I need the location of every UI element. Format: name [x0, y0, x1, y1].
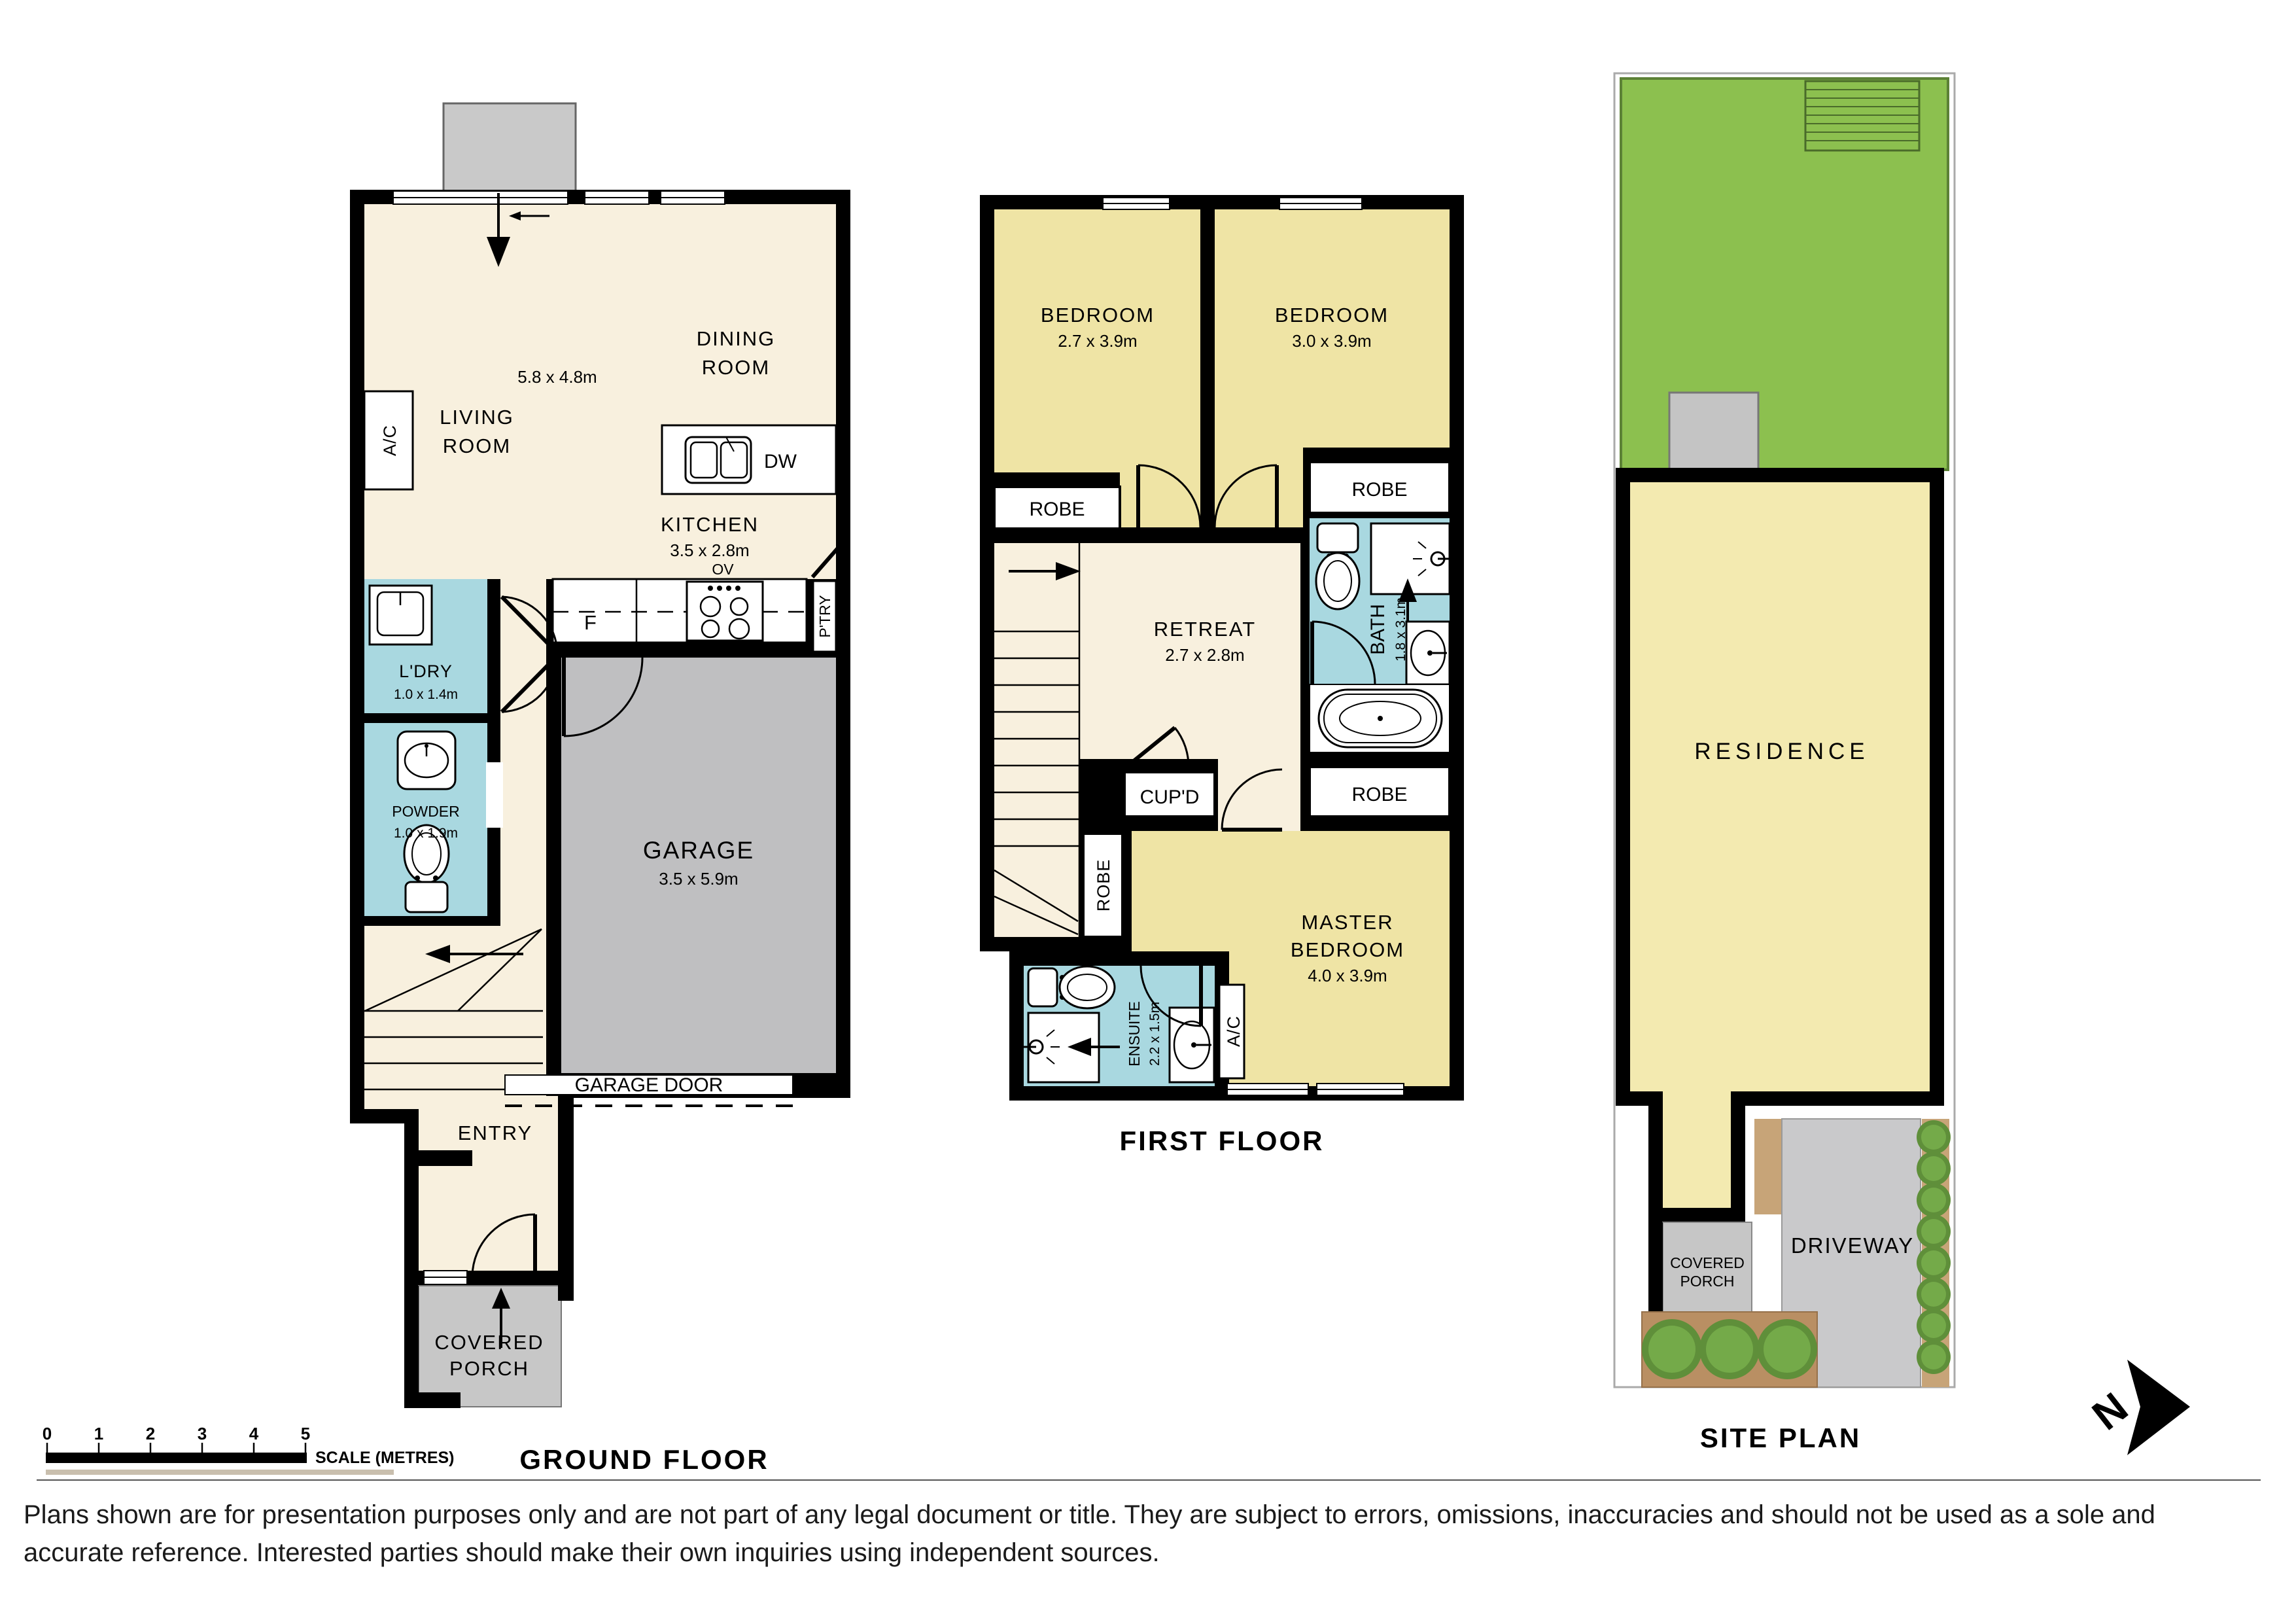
north-arrow-icon: N	[2083, 1360, 2190, 1455]
residence-label: RESIDENCE	[1694, 739, 1869, 764]
ac-unit-first: A/C	[1219, 985, 1244, 1078]
ac-first-label: A/C	[1224, 1015, 1244, 1047]
scale-tick-0: 0	[43, 1424, 52, 1443]
entry-label: ENTRY	[458, 1121, 533, 1144]
ground-open-living-floor	[364, 204, 836, 579]
window-icon	[393, 191, 725, 204]
scale-units-label: SCALE (METRES)	[315, 1449, 455, 1467]
basin-icon	[398, 732, 455, 789]
retreat-dims: 2.7 x 2.8m	[1165, 645, 1244, 665]
scale-bar-rule	[46, 1453, 307, 1463]
entry-wall-stub	[419, 1150, 472, 1166]
scale-tick-3: 3	[198, 1424, 207, 1443]
toilet-icon-ensuite	[1028, 966, 1115, 1008]
deck	[1805, 81, 1919, 150]
first-floor-title: FIRST FLOOR	[1120, 1125, 1325, 1156]
entry-wall-right	[558, 1096, 574, 1301]
powder-label: POWDER	[392, 803, 460, 820]
robe-master-left: ROBE	[1083, 834, 1122, 937]
living-room-label-2: ROOM	[443, 434, 511, 457]
porch-wall-bottom	[404, 1392, 461, 1408]
robe-master-right-label: ROBE	[1351, 784, 1407, 805]
master-label-1: MASTER	[1301, 911, 1393, 934]
robe-master-left-label: ROBE	[1094, 859, 1113, 912]
garage-label: GARAGE	[643, 837, 754, 864]
robe-master-right: ROBE	[1310, 767, 1450, 817]
disclaimer-line-1: Plans shown are for presentation purpose…	[24, 1496, 2280, 1534]
ground-floor-title: GROUND FLOOR	[519, 1444, 769, 1475]
bush-icon	[1642, 1319, 1817, 1379]
porch-wall-left	[404, 1286, 419, 1407]
bedroom1-label: BEDROOM	[1041, 304, 1155, 327]
ensuite-dims: 2.2 x 1.5m	[1147, 1002, 1162, 1066]
dining-room-label-1: DINING	[697, 327, 776, 350]
covered-porch-label-2: PORCH	[449, 1357, 529, 1380]
scale-bar: 0 1 2 3 4 5 SCALE (METRES)	[37, 1424, 2261, 1480]
garage-floor	[561, 658, 836, 1073]
first-floor-plan: ROBE ROBE CUP'D ROBE ROBE	[980, 195, 1464, 1156]
fridge-label: F	[584, 611, 598, 634]
open-space-dims: 5.8 x 4.8m	[517, 367, 597, 387]
laundry-tub-icon	[370, 586, 432, 644]
living-room-label-1: LIVING	[440, 406, 514, 429]
site-porch-label-1: COVERED	[1670, 1254, 1745, 1271]
bedroom2-dims: 3.0 x 3.9m	[1292, 331, 1371, 351]
kitchen-island: DW	[662, 425, 836, 494]
bath-dims: 1.8 x 3.1m	[1393, 597, 1408, 662]
kitchen-bench: F	[553, 579, 807, 643]
dishwasher-label: DW	[764, 451, 797, 472]
ensuite-label: ENSUITE	[1126, 1001, 1143, 1067]
laundry-label: L'DRY	[399, 662, 453, 681]
toilet-icon-bath	[1316, 523, 1359, 609]
laundry-dims: 1.0 x 1.4m	[394, 687, 458, 702]
kitchen-label: KITCHEN	[661, 513, 759, 536]
covered-porch-label-1: COVERED	[434, 1331, 544, 1354]
bedroom2-label: BEDROOM	[1275, 304, 1389, 327]
site-plan: RESIDENCE COVERED PORCH DRIVEWAY	[1614, 73, 1955, 1453]
ac-label: A/C	[380, 425, 400, 456]
site-plan-title: SITE PLAN	[1700, 1422, 1861, 1453]
powder-slider-door	[486, 762, 503, 828]
cooktop-icon	[687, 582, 763, 641]
floorplan-sheet: A/C DW F	[0, 0, 2296, 1624]
driveway-label: DRIVEWAY	[1791, 1233, 1914, 1258]
north-letter: N	[2083, 1383, 2136, 1439]
pantry-label: P'TRY	[816, 595, 833, 637]
robe-left-label: ROBE	[1029, 499, 1085, 520]
side-path	[1754, 1119, 1782, 1214]
kitchen-dims: 3.5 x 2.8m	[670, 540, 749, 560]
scale-underline	[46, 1470, 394, 1475]
yard-slab	[1669, 393, 1758, 470]
robe-left: ROBE	[994, 487, 1120, 529]
garden-bed	[1642, 1312, 1817, 1387]
garage-door-label: GARAGE DOOR	[575, 1074, 723, 1096]
scale-tick-4: 4	[249, 1424, 259, 1443]
retreat-label: RETREAT	[1154, 618, 1256, 641]
bathtub-icon	[1310, 684, 1450, 752]
hedge-row	[1917, 1119, 1951, 1387]
shower-icon	[1371, 523, 1450, 594]
ac-unit: A/C	[364, 391, 413, 489]
disclaimer-text: Plans shown are for presentation purpose…	[24, 1496, 2280, 1572]
robe-right-label: ROBE	[1351, 479, 1407, 501]
bedroom1-dims: 2.7 x 3.9m	[1058, 331, 1137, 351]
oven-label: OV	[712, 561, 734, 578]
site-porch-label-2: PORCH	[1680, 1273, 1734, 1290]
dining-room-label-2: ROOM	[702, 356, 770, 379]
floorplan-drawing: A/C DW F	[0, 0, 2296, 1624]
vanity-icon-bath	[1406, 622, 1450, 684]
bath-label: BATH	[1367, 604, 1389, 655]
cupboard-label: CUP'D	[1140, 786, 1200, 808]
scale-tick-5: 5	[301, 1424, 310, 1443]
garage-dims: 3.5 x 5.9m	[659, 869, 738, 889]
master-label-2: BEDROOM	[1291, 938, 1404, 961]
scale-tick-1: 1	[94, 1424, 103, 1443]
scale-tick-2: 2	[146, 1424, 155, 1443]
vanity-icon-ensuite	[1170, 1008, 1214, 1082]
first-hall-floor	[1218, 759, 1300, 832]
robe-right: ROBE	[1310, 462, 1450, 513]
powder-dims: 1.0 x 1.9m	[394, 826, 458, 841]
disclaimer-line-2: accurate reference. Interested parties s…	[24, 1534, 2280, 1572]
ground-floor-plan: A/C DW F	[350, 103, 850, 1475]
upper-balcony	[444, 103, 576, 200]
sink-icon	[686, 437, 751, 483]
master-dims: 4.0 x 3.9m	[1308, 966, 1387, 985]
